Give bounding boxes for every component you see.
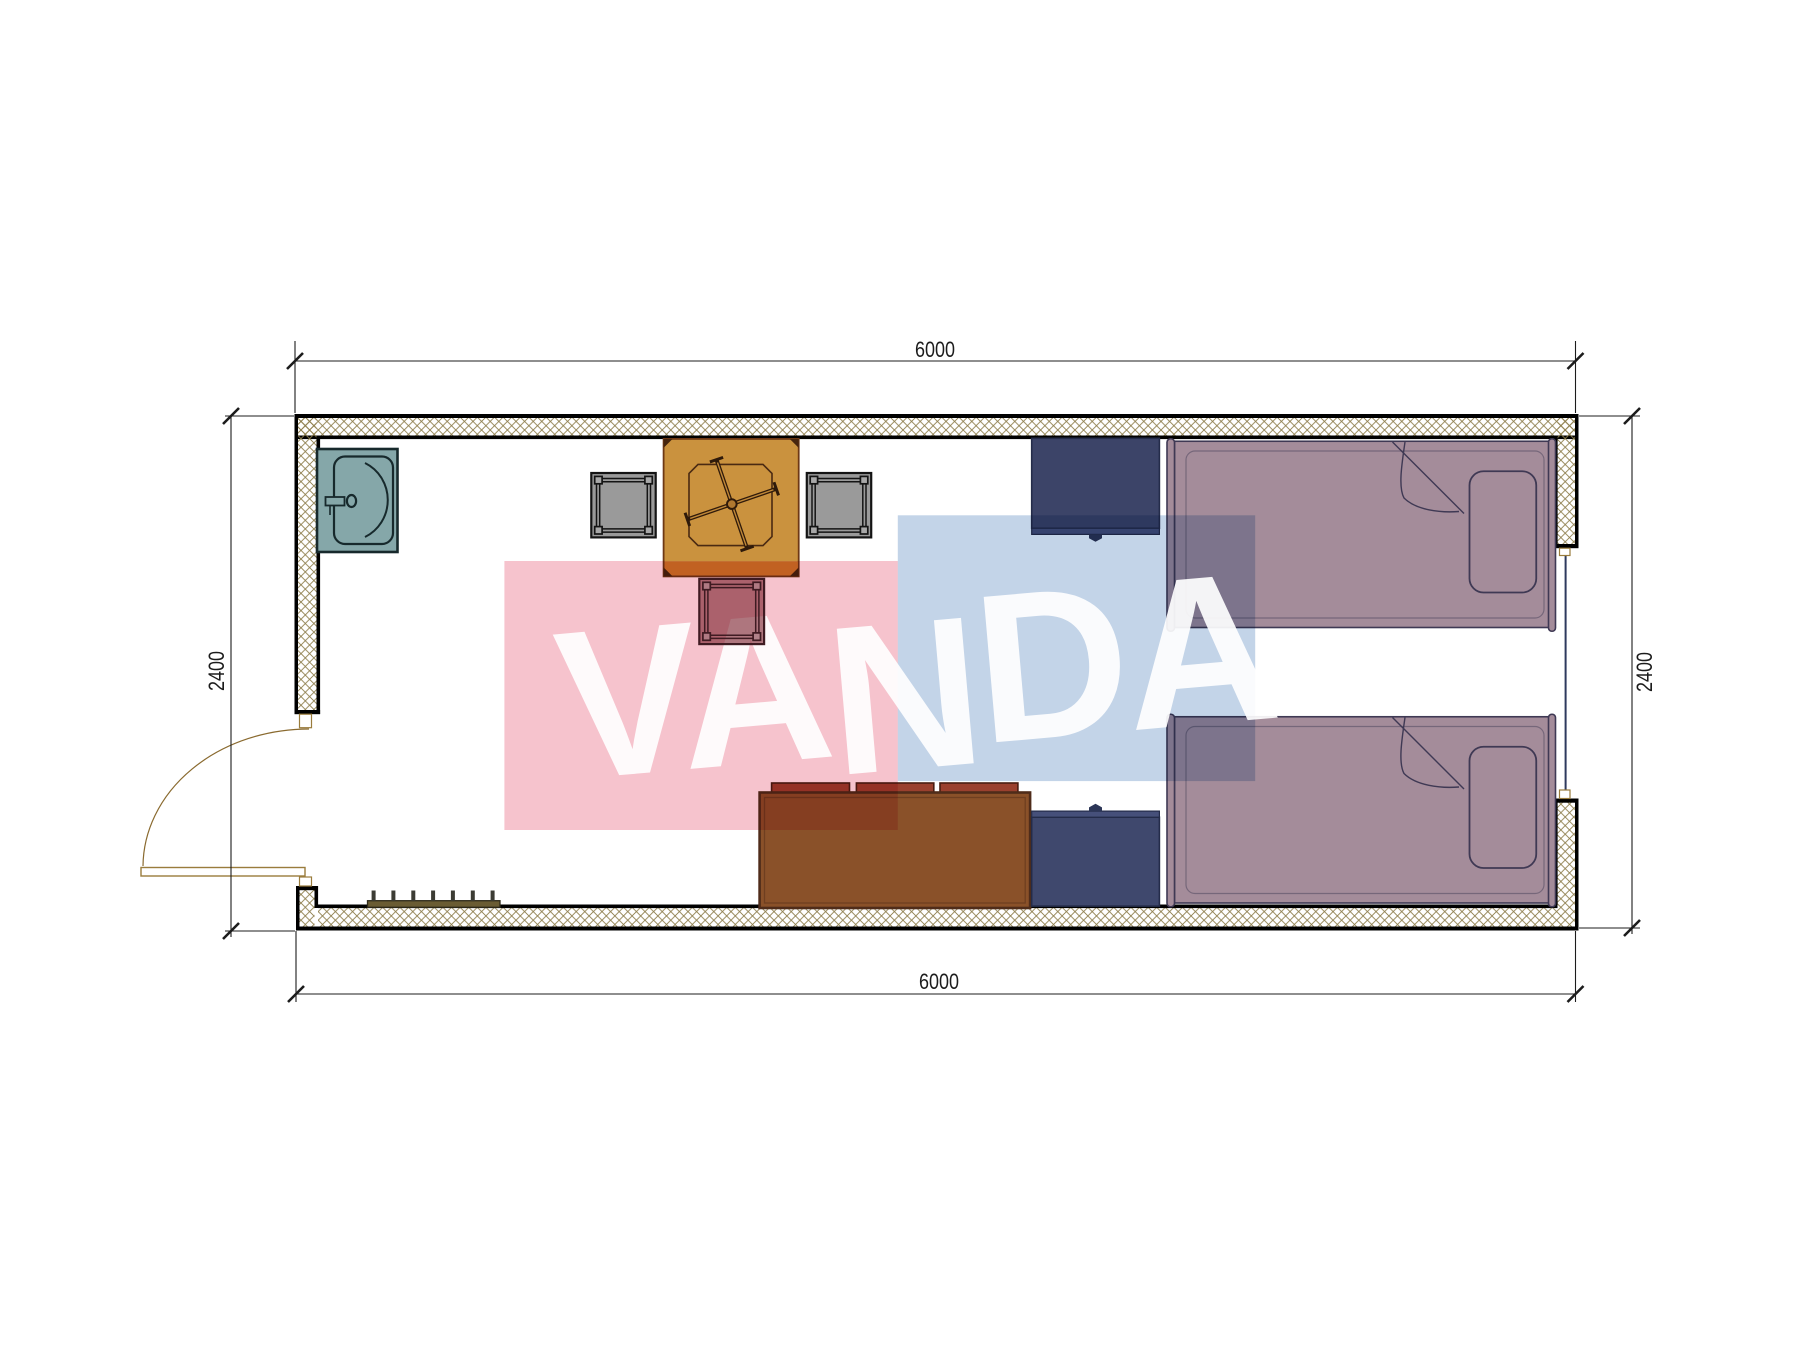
svg-text:2400: 2400 (204, 651, 229, 691)
svg-text:6000: 6000 (919, 969, 959, 994)
svg-text:2400: 2400 (1632, 652, 1657, 692)
svg-text:6000: 6000 (915, 337, 955, 362)
